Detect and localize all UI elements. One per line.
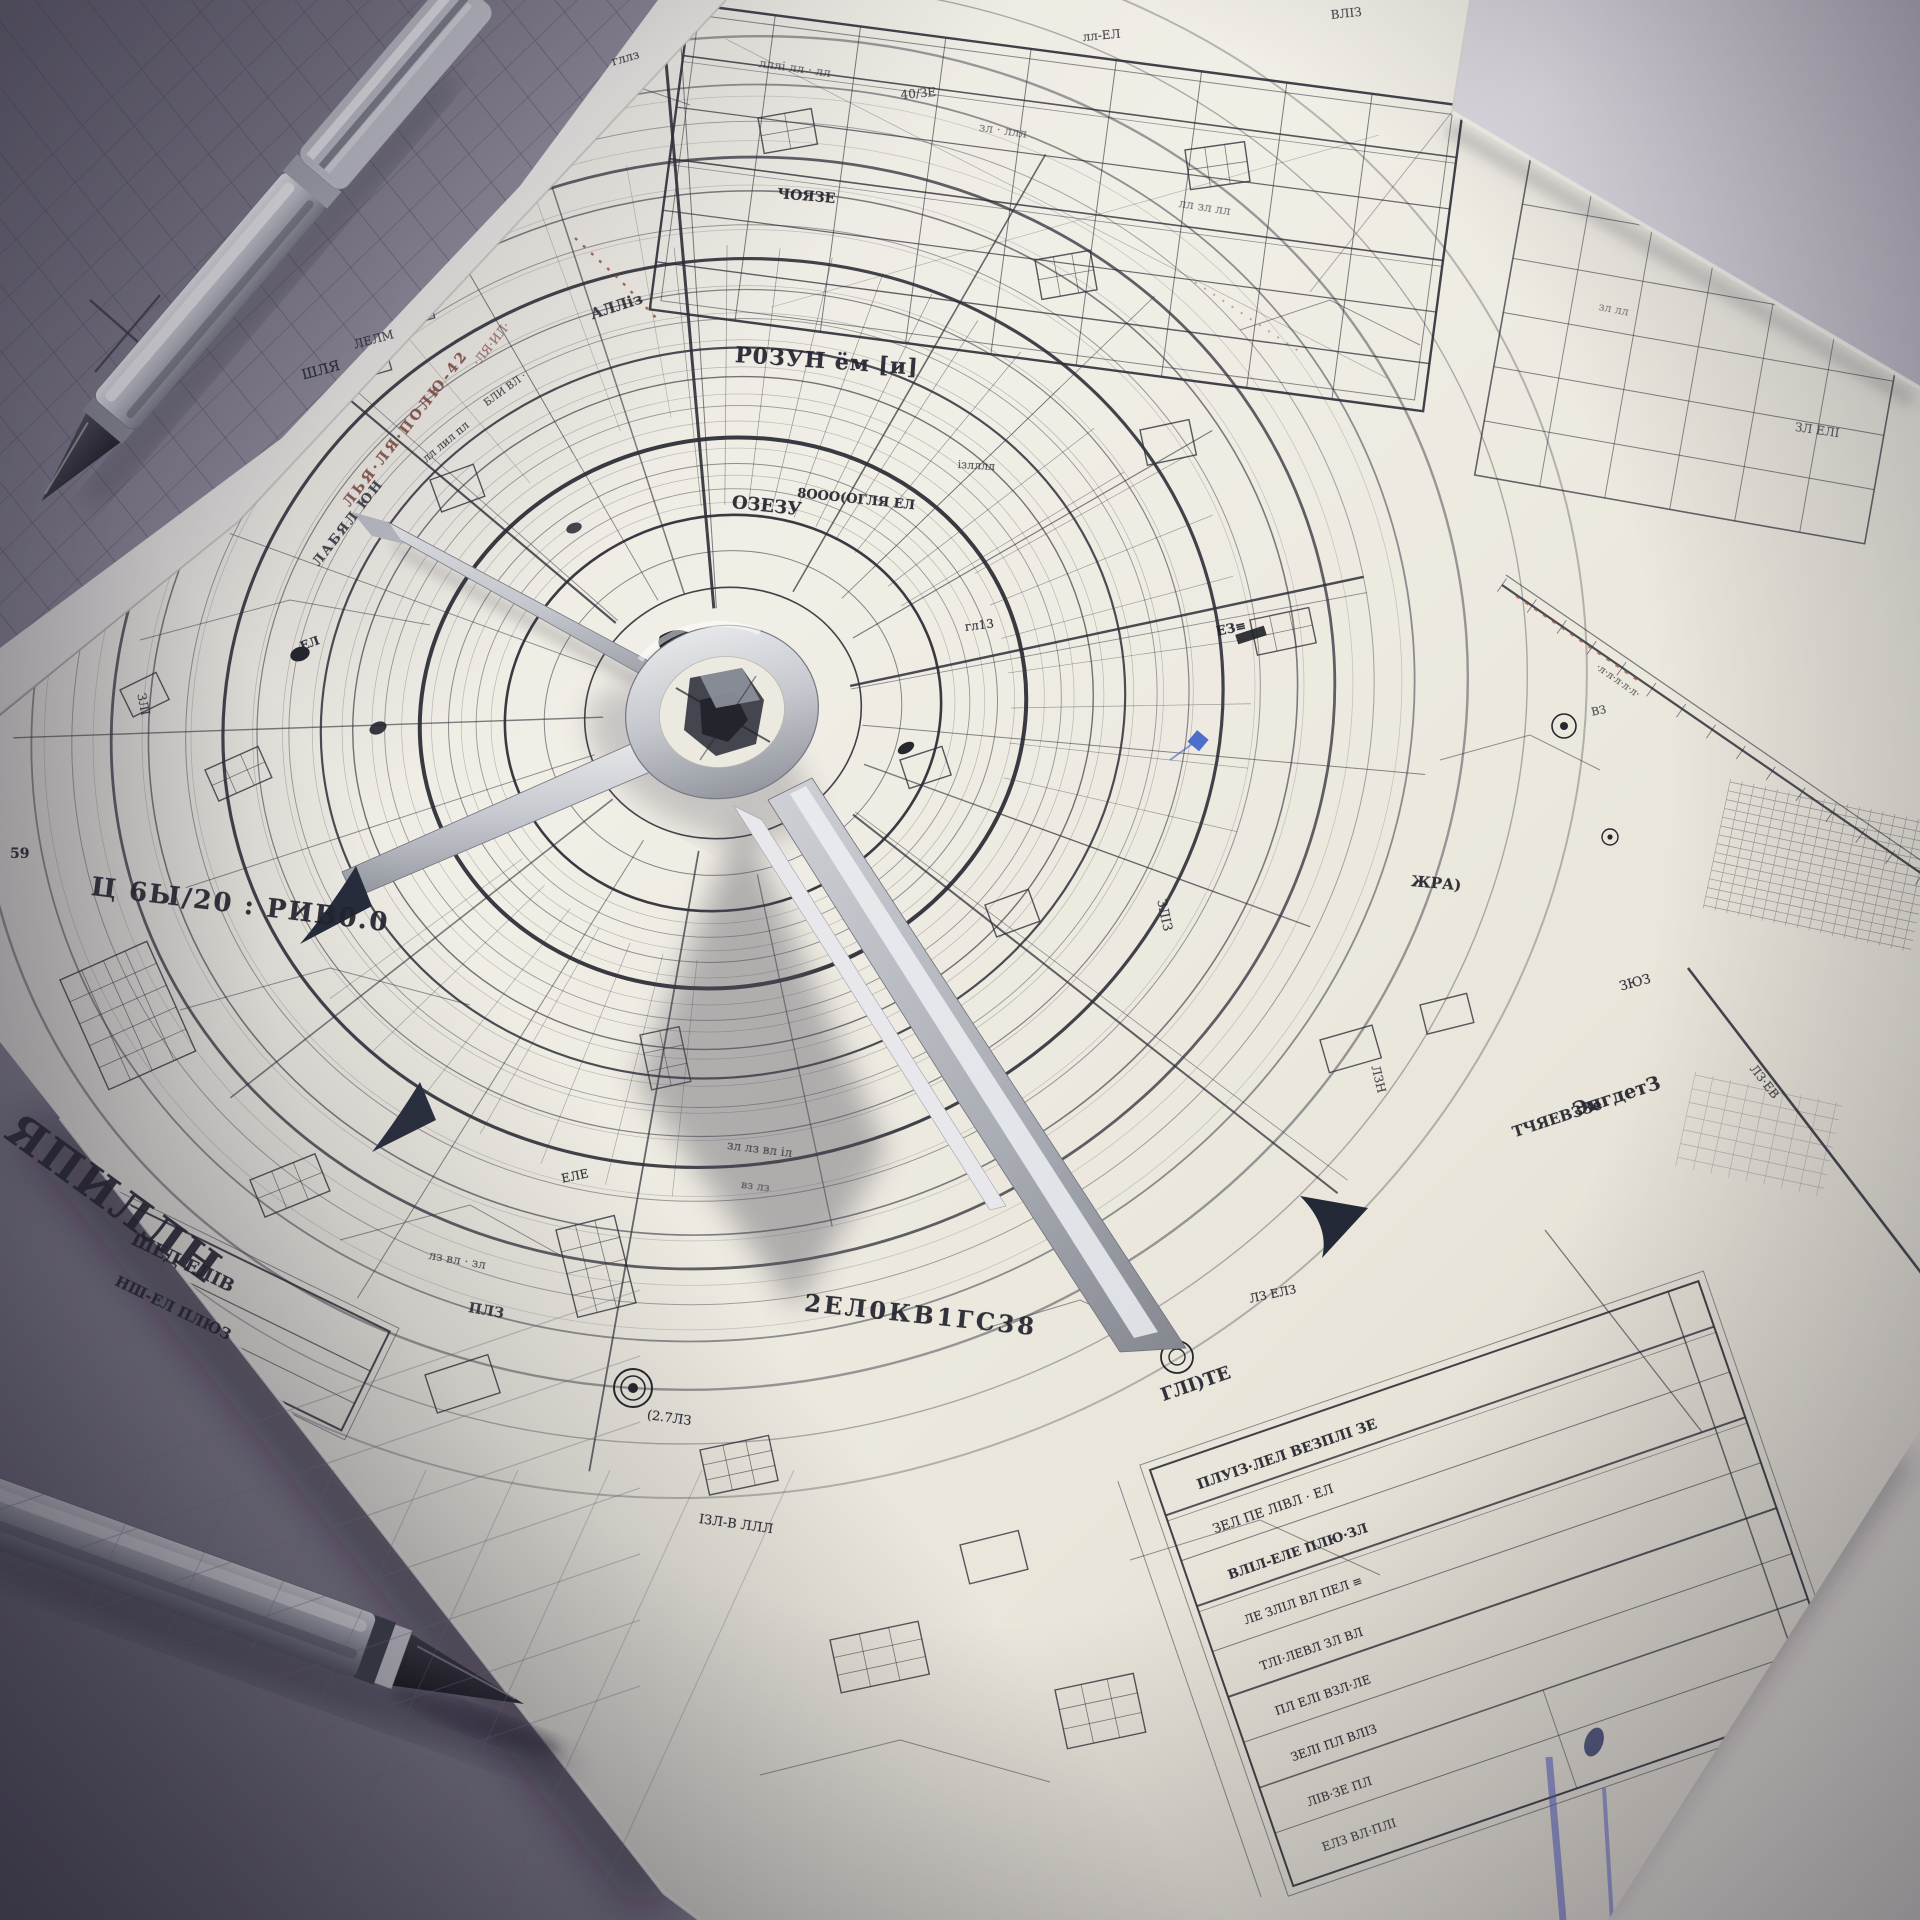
blueprint-drawing — [0, 0, 1920, 1920]
blueprint-scene: Ц 6Ы/20 : РИВ0.0ЯПИЛЛНШЕД ЕЛІВНШ-ЕЛ ПЛЮЗ… — [0, 0, 1920, 1920]
